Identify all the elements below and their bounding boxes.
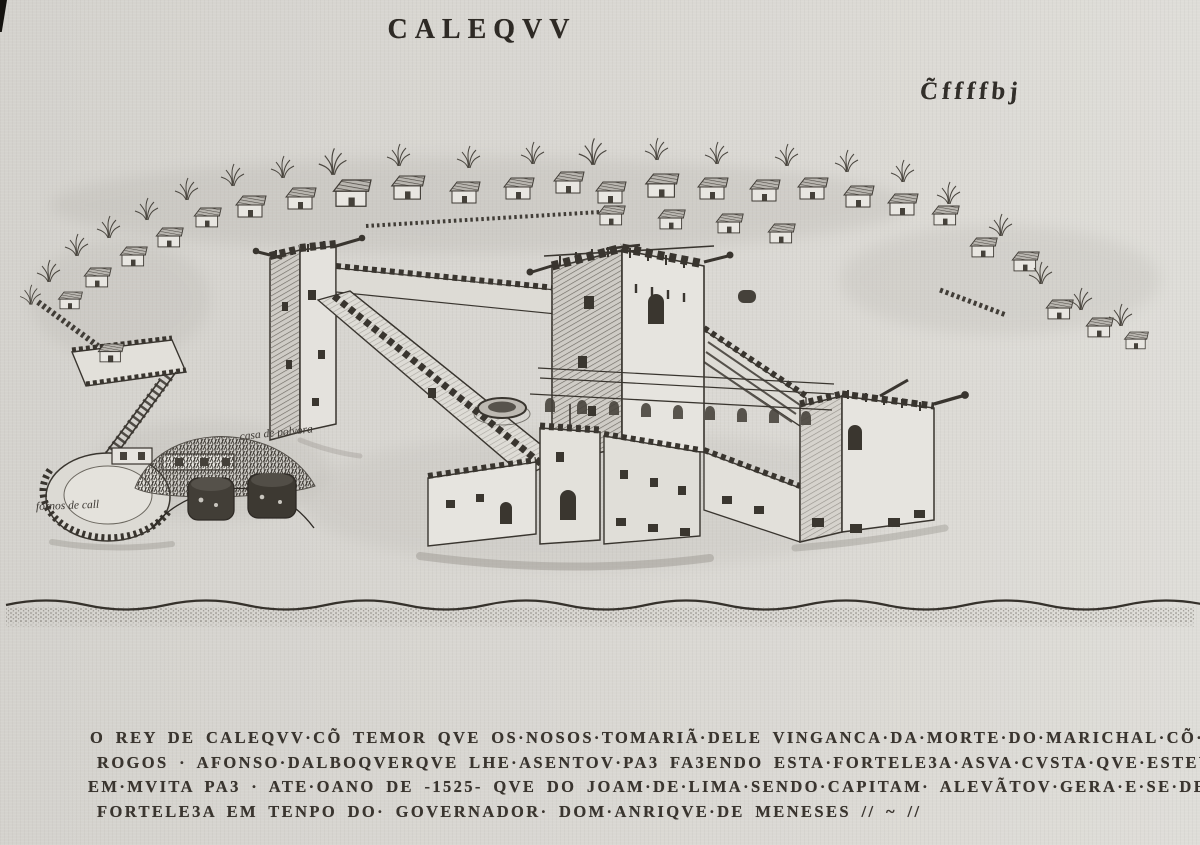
page-title: CALEQVV — [372, 14, 592, 46]
manuscript-page: casa de polvora fornos de call CALEQVV C… — [0, 0, 1200, 845]
lime-kilns-label: fornos de call — [36, 499, 100, 513]
caption-line-2: ROGOS · AFONSO·DALBOQVERQVE LHE·ASENTOV·… — [97, 751, 1200, 776]
caption-line-3: EM·MVITA PA3 · ATE·OANO DE -1525- QVE DO… — [88, 775, 1200, 800]
fortress-right-tower — [800, 380, 968, 542]
folio-mark: C̃ffffbj — [919, 78, 1023, 106]
shoreline-water — [6, 601, 1200, 628]
caption-line-1: O REY DE CALEQVV·CÕ TEMOR QVE OS·NOSOS·T… — [90, 726, 1200, 751]
fortress-drawing: casa de polvora fornos de call — [0, 0, 1200, 845]
caption-line-4: FORTELE3A EM TENPO DO· GOVERNADOR· DOM·A… — [97, 800, 1200, 825]
caption-block: O REY DE CALEQVV·CÕ TEMOR QVE OS·NOSOS·T… — [88, 726, 1200, 824]
